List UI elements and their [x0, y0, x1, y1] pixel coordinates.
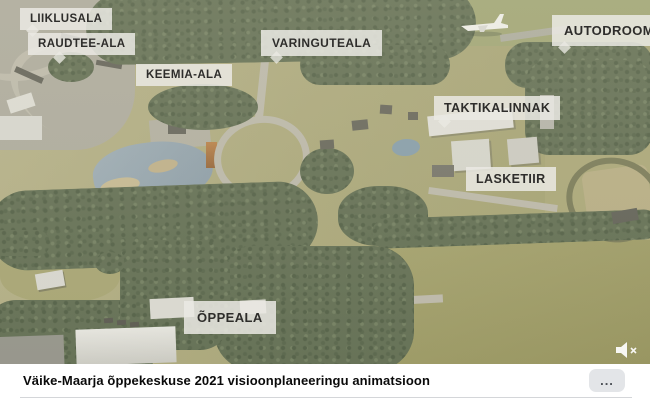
map-label-varinguteala: VARINGUTEALA: [261, 30, 382, 56]
center-building-1: [352, 119, 369, 131]
facebook-video-post: LIIKLUSALA RAUDTEE-ALA KEEMIA-ALA VARING…: [0, 0, 650, 400]
post-footer-bar: Väike-Maarja õppekeskuse 2021 visioonpla…: [0, 364, 650, 400]
parked-car-3: [130, 322, 139, 328]
school-building-gray: [0, 335, 65, 364]
map-label-lasketiir: LASKETIIR: [466, 167, 556, 191]
map-label-oppeala: ÕPPEALA: [184, 301, 276, 334]
speaker-muted-icon[interactable]: [615, 341, 641, 359]
center-building-4: [320, 140, 335, 150]
center-building-2: [380, 105, 393, 115]
parked-car-2: [117, 320, 126, 326]
map-label-taktikalinnak: TAKTIKALINNAK: [434, 96, 560, 120]
video-player[interactable]: LIIKLUSALA RAUDTEE-ALA KEEMIA-ALA VARING…: [0, 0, 650, 364]
forest-keemia-cluster: [148, 84, 258, 130]
railway-platform: [0, 116, 42, 140]
map-label-keemia-ala: KEEMIA-ALA: [136, 64, 232, 86]
forest-center-1: [300, 148, 354, 194]
footer-divider: [20, 397, 632, 398]
video-title: Väike-Maarja õppekeskuse 2021 visioonpla…: [23, 373, 430, 388]
map-label-raudtee-ala: RAUDTEE-ALA: [28, 33, 135, 55]
forest-clump-2: [95, 252, 125, 274]
map-label-liiklusala: LIIKLUSALA: [20, 8, 112, 30]
parked-car-1: [104, 318, 113, 324]
center-building-3: [408, 112, 418, 120]
school-building-main: [75, 326, 176, 364]
more-options-button[interactable]: ...: [589, 369, 625, 392]
tactical-building-dark: [432, 165, 454, 177]
airplane: [458, 12, 510, 38]
tactical-building-3: [507, 137, 539, 166]
map-label-autodroom: AUTODROOM: [552, 15, 650, 46]
forest-clump-1: [0, 230, 50, 256]
